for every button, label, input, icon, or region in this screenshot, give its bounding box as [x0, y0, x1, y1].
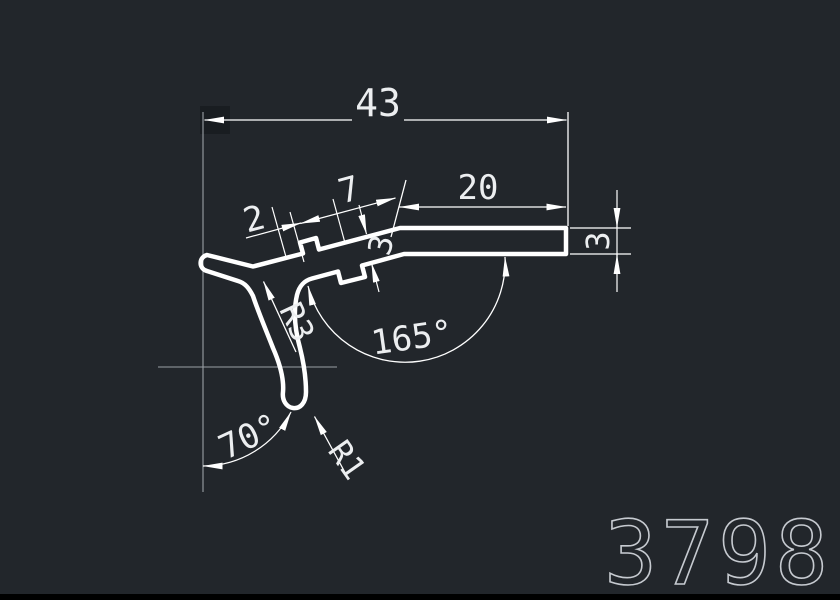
dim-20-label: 20 — [458, 168, 499, 208]
dim-43-label: 43 — [355, 81, 401, 125]
cad-viewport[interactable]: 43 20 7 2 3 3 165° 70° R1 R3 — [0, 0, 840, 600]
cad-drawing: 43 20 7 2 3 3 165° 70° R1 R3 — [0, 0, 840, 600]
dim-3-bar-label: 3 — [579, 231, 617, 250]
part-number: 3798 — [604, 502, 832, 600]
